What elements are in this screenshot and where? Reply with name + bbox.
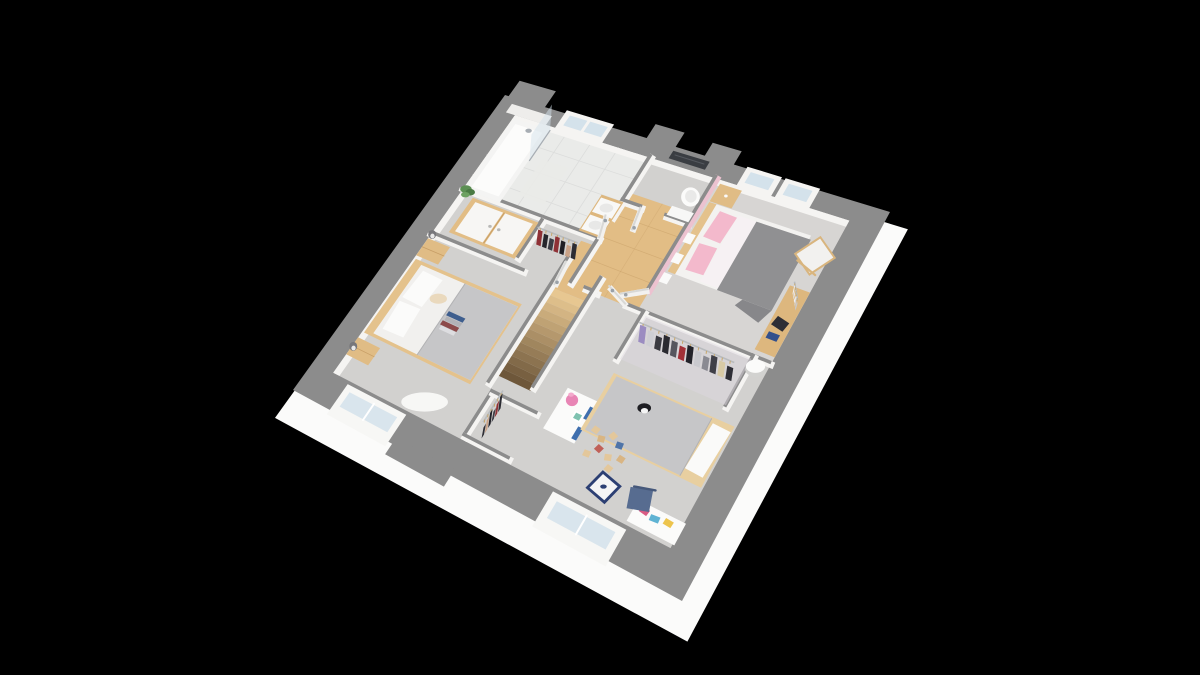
floorplan-render-stage <box>0 0 1200 675</box>
floorplan-3d-svg <box>0 0 1200 675</box>
master-rug <box>401 392 448 411</box>
